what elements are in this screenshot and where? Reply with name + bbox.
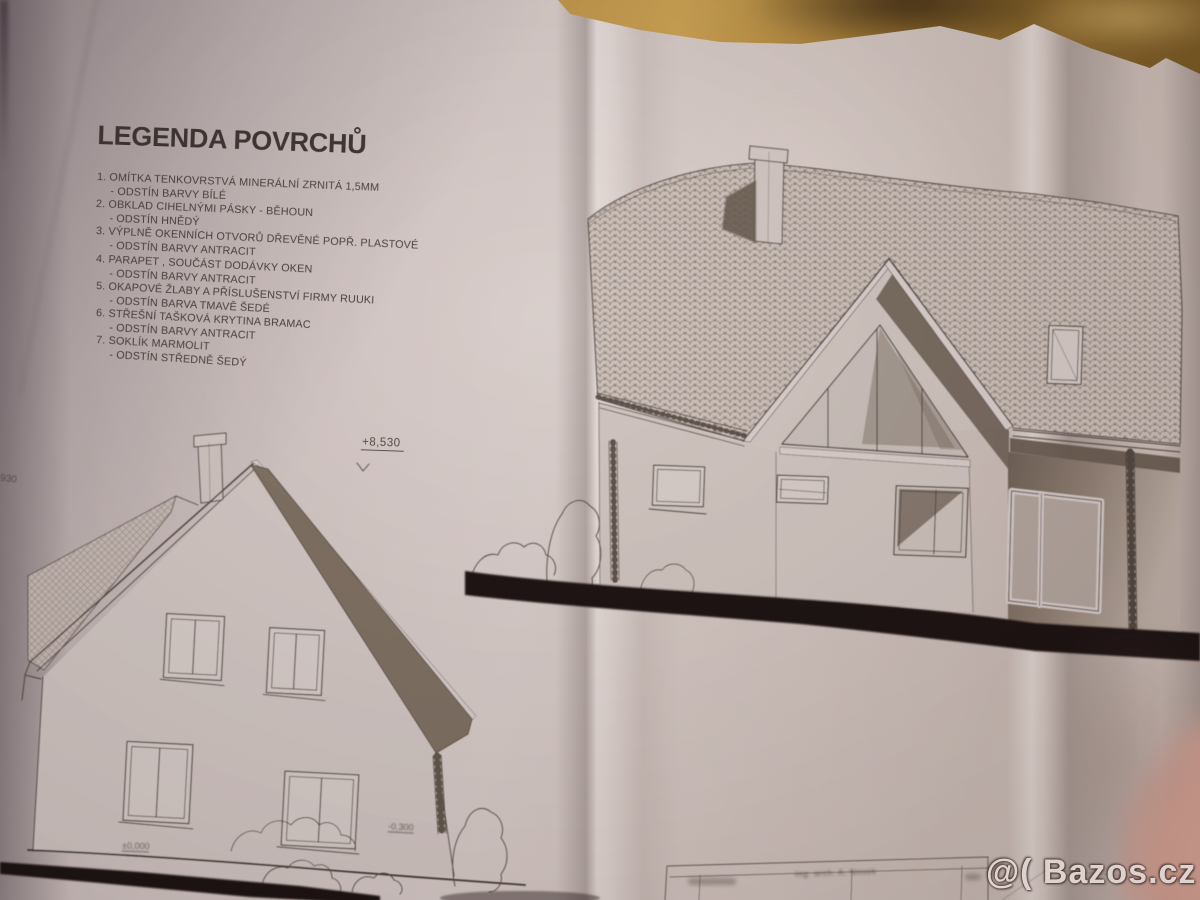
window [119,741,197,829]
photo-of-architectural-drawing: LEGENDA POVRCHŮ 1. OMÍTKA TENKOVRSTVÁ MI… [0,0,1200,900]
elevation-marker-left-edge: +6,930 [0,471,17,485]
left-house-elevation-drawing [22,433,525,894]
bazos-watermark: @( Bazos.cz [986,853,1196,892]
legend-block: LEGENDA POVRCHŮ 1. OMÍTKA TENKOVRSTVÁ MI… [90,120,508,375]
title-block-smudge [688,878,736,885]
window [777,475,829,504]
title-block-smudge [965,874,981,880]
roof-window [1047,325,1083,384]
window [277,771,363,854]
finger-blur [1152,700,1200,810]
window [160,613,228,685]
elevation-marker-terrain: -0,300 [388,821,414,833]
middle-house-elevation-drawing [470,146,1182,648]
elevation-marker-floor: ±0,000 [122,841,150,853]
elevation-marker-ridge: +8,530 [361,436,404,451]
window-door [1008,491,1101,611]
window [894,486,968,557]
paper-sheet: LEGENDA POVRCHŮ 1. OMÍTKA TENKOVRSTVÁ MI… [0,0,1200,900]
window [263,627,329,700]
